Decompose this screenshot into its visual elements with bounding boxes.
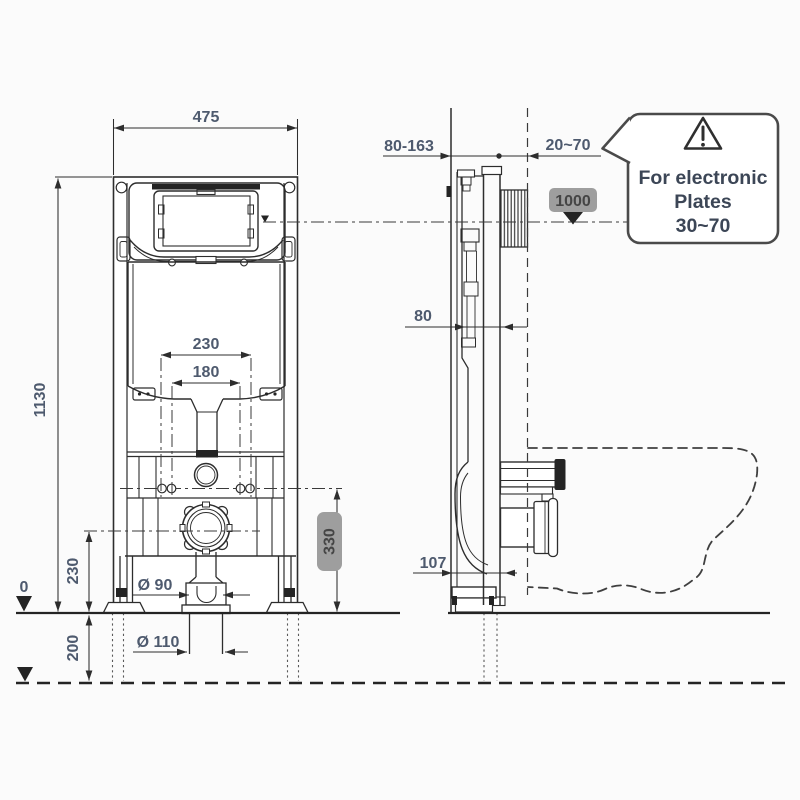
level-triangle-icon [17, 667, 33, 682]
dim-label-20-70: 20~70 [546, 137, 591, 154]
floor-zero-marker: 0 [16, 579, 33, 682]
dim-outlet-offset-107: 107 [413, 555, 517, 576]
front-view: 475 1130 230 180 [16, 109, 342, 682]
zero-label: 0 [20, 579, 29, 596]
dim-waste-dia-110: Ø 110 [133, 634, 248, 655]
level-badge-1000: 1000 [549, 188, 597, 225]
dim-height-1130: 1130 [32, 177, 112, 612]
fixing-bolt [246, 484, 255, 493]
dim-bolt-height-330: 330 [317, 490, 342, 612]
side-flush-elbow [452, 462, 505, 612]
dim-width-475: 475 [114, 109, 298, 175]
callout-line-3: 30~70 [676, 215, 731, 237]
level-triangle-icon [16, 596, 32, 612]
badge-330-label: 330 [322, 528, 339, 555]
dim-label-180: 180 [193, 364, 220, 381]
callout-line-2: Plates [674, 191, 732, 213]
dim-label-80: 80 [414, 308, 432, 325]
callout-line-1: For electronic [639, 167, 768, 189]
water-supply-stub [501, 459, 566, 501]
dim-label-dia110: Ø 110 [137, 634, 180, 651]
badge-1000-label: 1000 [555, 193, 591, 210]
dim-label-475: 475 [193, 109, 220, 126]
dim-label-1130: 1130 [32, 383, 49, 418]
inlet-hole [195, 464, 218, 487]
dim-label-80-163: 80-163 [384, 138, 434, 155]
dim-depth-range: 80-163 20~70 [383, 137, 601, 159]
outlet-flange [180, 502, 232, 554]
callout-electronic-plates: For electronic Plates 30~70 [603, 114, 779, 243]
flush-pipe-connector [501, 499, 558, 557]
dim-label-dia90: Ø 90 [138, 577, 173, 594]
side-tank-profile [457, 170, 483, 462]
dim-label-107: 107 [420, 555, 447, 572]
dim-below-floor-200: 200 [65, 616, 92, 681]
dim-label-230w: 230 [193, 336, 220, 353]
flush-plate-side-hatched [501, 190, 528, 247]
side-frame-column [482, 167, 502, 606]
level-triangle-icon [563, 212, 583, 225]
dim-label-200: 200 [65, 635, 82, 662]
technical-drawing: 475 1130 230 180 [0, 0, 800, 800]
fixing-bolt [158, 484, 167, 493]
dim-frame-depth-80: 80 [405, 308, 527, 330]
dim-label-230h: 230 [65, 558, 82, 585]
